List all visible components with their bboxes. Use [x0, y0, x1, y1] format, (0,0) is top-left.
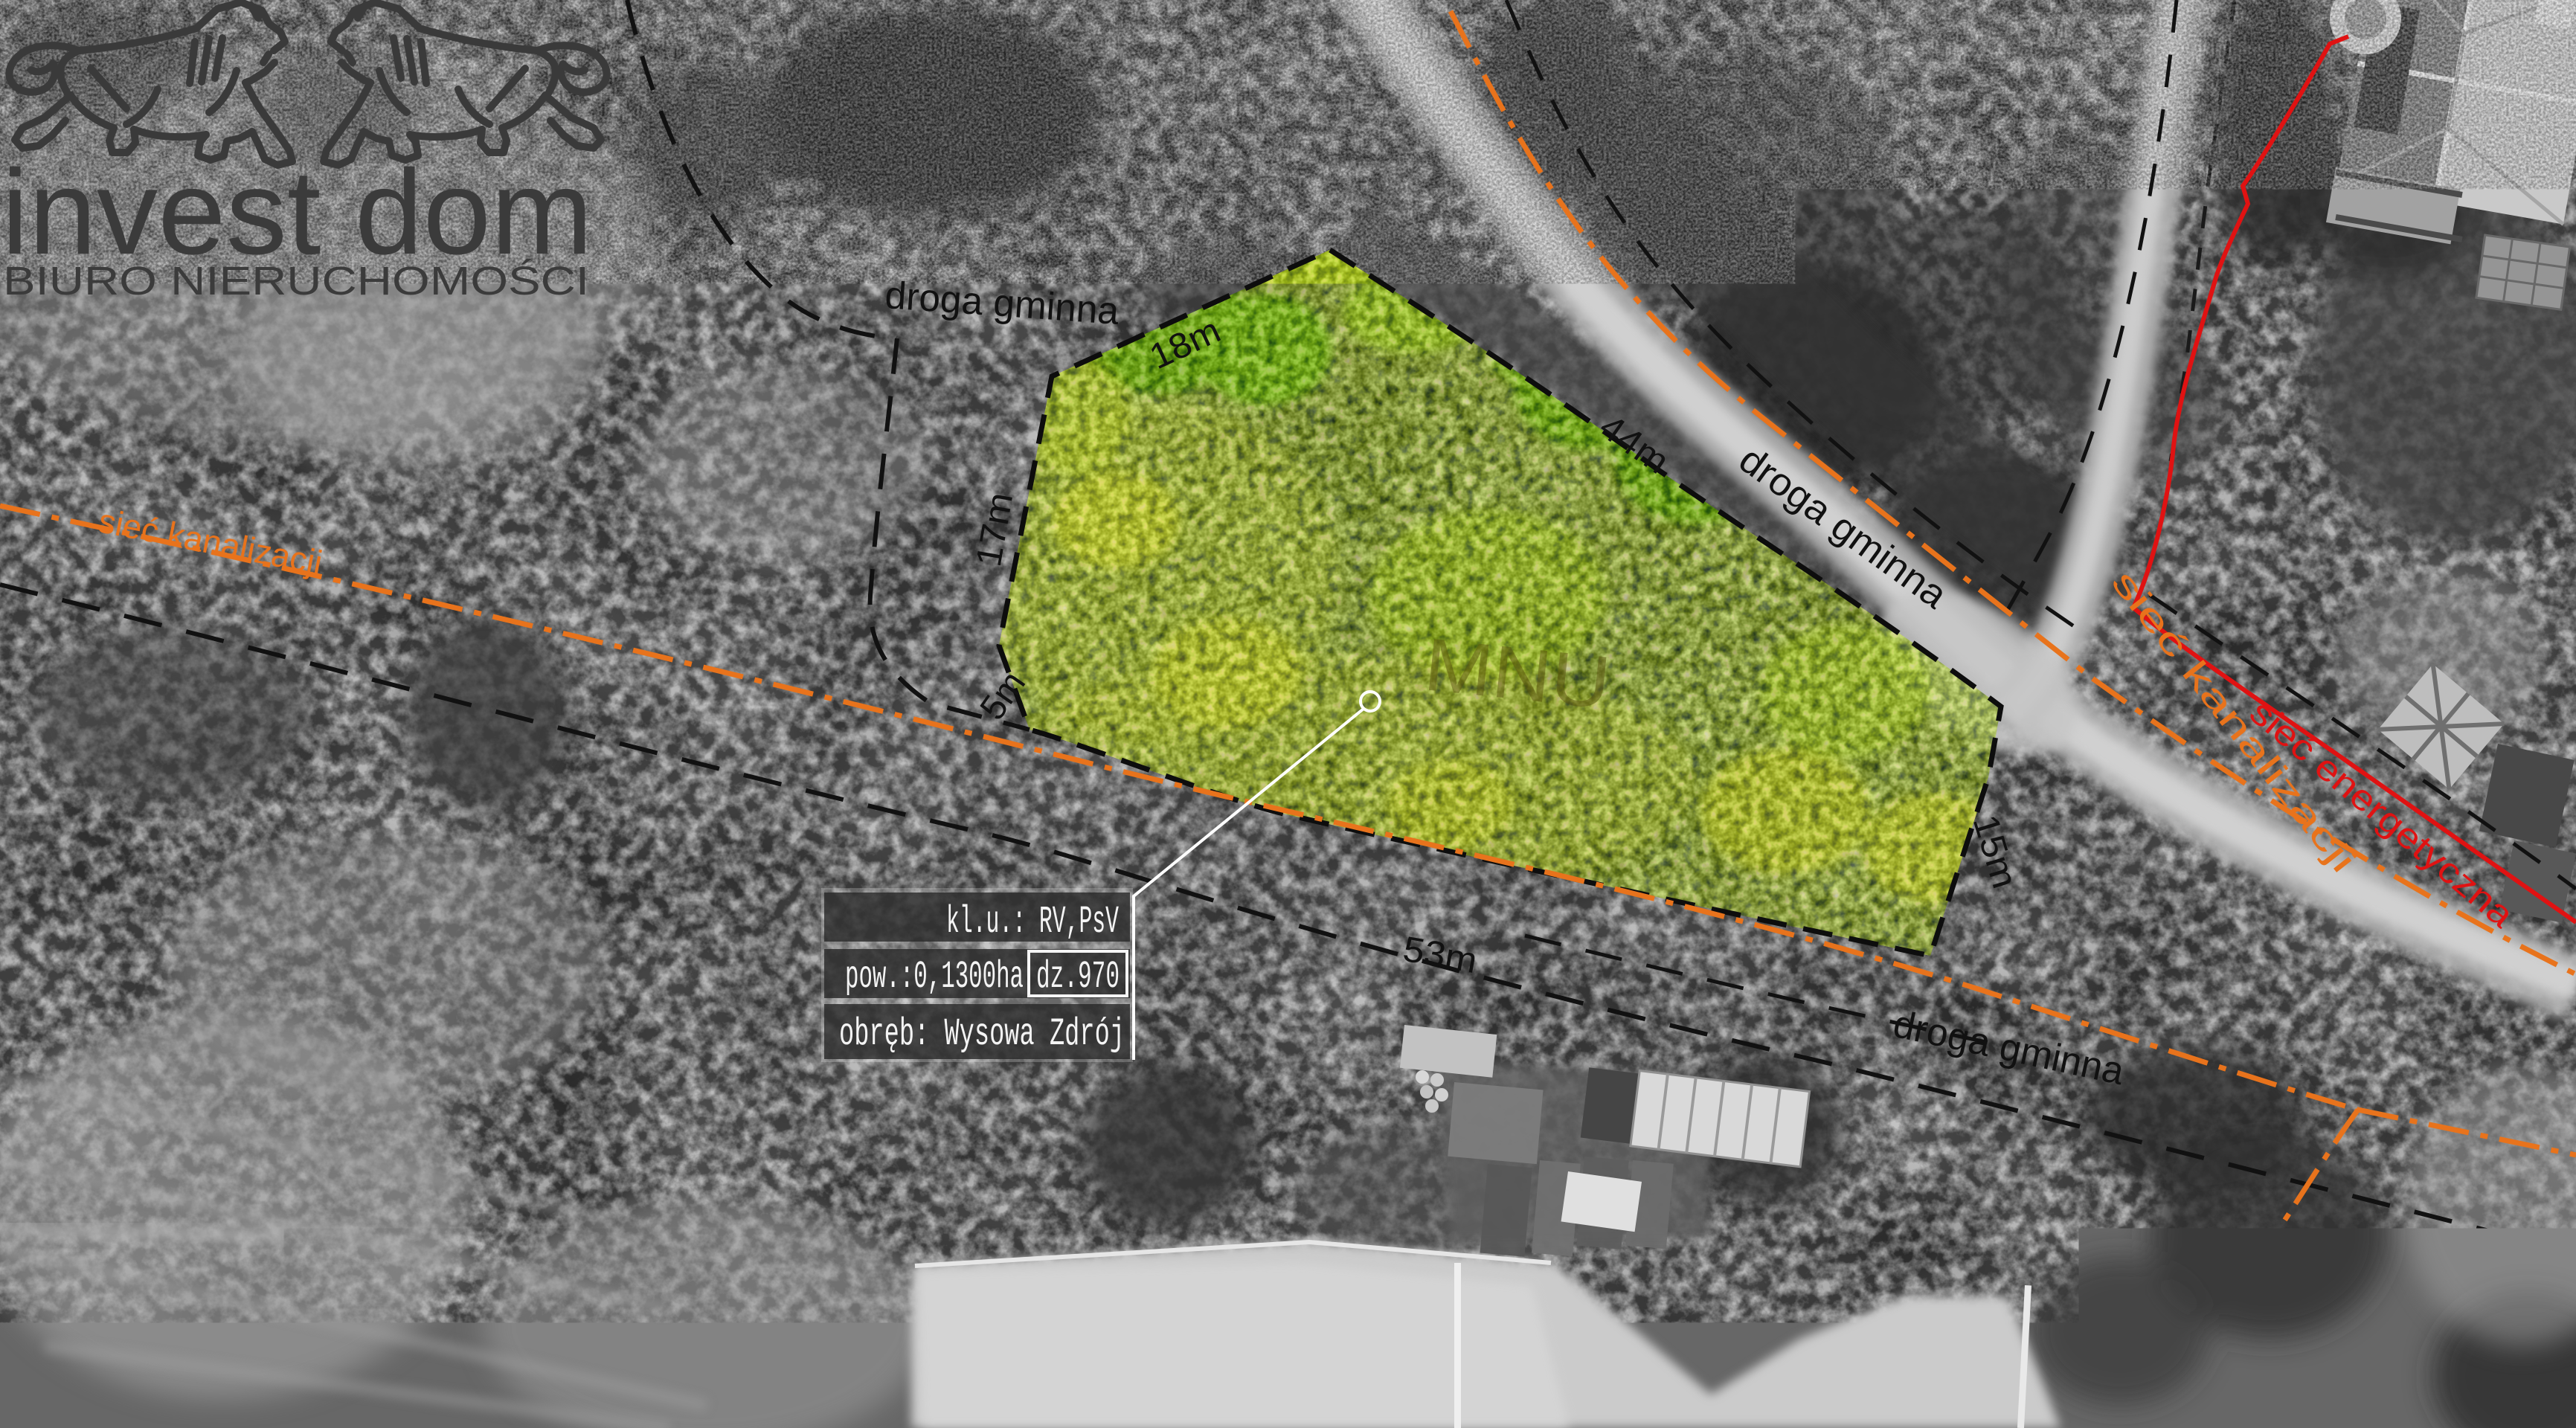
svg-text:pow.:0,1300ha: pow.:0,1300ha — [845, 955, 1024, 999]
svg-text:BIURO NIERUCHOMOŚCI: BIURO NIERUCHOMOŚCI — [3, 258, 589, 303]
svg-text:kl.u.: RV,PsV: kl.u.: RV,PsV — [946, 900, 1119, 944]
svg-text:dz.970: dz.970 — [1036, 955, 1120, 999]
svg-text:obręb: Wysowa Zdrój: obręb: Wysowa Zdrój — [839, 1012, 1125, 1056]
